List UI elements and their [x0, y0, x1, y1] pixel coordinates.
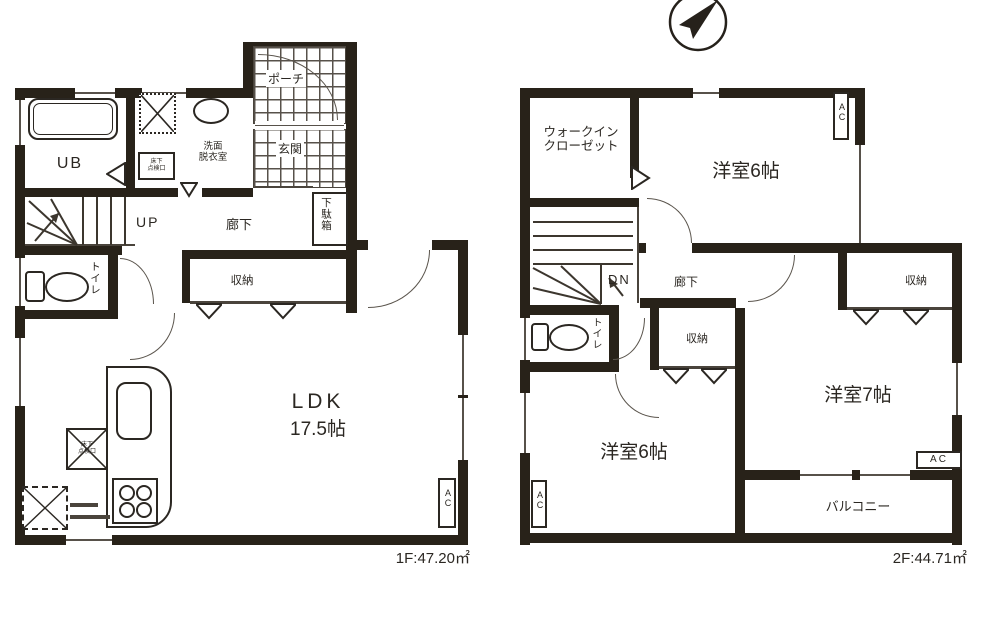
folding-door-mark: [701, 368, 727, 385]
folding-door-mark: [903, 309, 929, 326]
room-label-bedroom-sw: 洋室6帖: [586, 437, 682, 464]
wall: [650, 308, 659, 370]
ac-unit-bedroom-e: AC: [916, 451, 962, 469]
room-label-toilet: トイレ: [588, 317, 603, 350]
bedroom-ne-door-arc: [647, 198, 692, 243]
stairs-up: [25, 197, 135, 247]
ac-unit-ldk: AC: [438, 478, 456, 528]
floor2-area-label: 2F:44.71㎡: [845, 547, 967, 568]
window: [520, 393, 530, 453]
wall: [640, 298, 736, 308]
wall: [15, 188, 178, 197]
floor1-area-label: 1F:47.20㎡: [348, 547, 470, 568]
room-label-ub: UB: [40, 155, 100, 173]
bathtub-inner-line: [33, 103, 113, 135]
window: [15, 258, 25, 306]
window: [15, 338, 25, 406]
stove: [112, 478, 158, 524]
window: [15, 100, 25, 145]
toilet-door-arc: [613, 318, 645, 360]
room-label-shoe-cabinet: 下駄箱: [319, 197, 334, 232]
ac-label: AC: [837, 102, 847, 122]
window: [458, 335, 468, 395]
wall: [243, 46, 253, 98]
stairs-edge-line: [637, 207, 639, 303]
ac-label: AC: [918, 454, 960, 465]
north-arrow-icon: [666, 0, 730, 52]
toilet-bowl: [45, 272, 89, 302]
wall: [855, 243, 962, 253]
counter-line: [70, 515, 110, 519]
bedroom-e-door-arc: [748, 255, 795, 302]
window: [693, 88, 719, 98]
window: [75, 88, 115, 98]
washing-machine: [139, 93, 176, 134]
folding-door-mark: [663, 368, 689, 385]
refrigerator-space: [22, 486, 68, 530]
wall: [692, 243, 855, 253]
room-label-entrance: 玄関: [276, 140, 304, 157]
wall: [520, 198, 639, 207]
wall: [182, 259, 190, 303]
room-label-toilet: トイレ: [88, 261, 103, 296]
washroom-door-mark: [180, 182, 198, 198]
room-label-porch: ポーチ: [266, 70, 306, 87]
toilet-tank: [25, 271, 45, 302]
wall: [243, 42, 356, 46]
folding-door-mark: [853, 309, 879, 326]
bedroom-sw-door-arc: [615, 374, 659, 418]
room-label-storage-mid: 収納: [671, 330, 723, 346]
bathtub: [28, 98, 118, 140]
wall: [202, 188, 253, 197]
room-label-storage: 収納: [210, 272, 274, 288]
wall: [520, 362, 619, 372]
window: [458, 398, 468, 460]
stairs-down-label: DN: [608, 272, 631, 287]
hatch-label-line2: 点検口: [68, 449, 106, 456]
window: [520, 318, 530, 360]
underfloor-hatch: 床下 点検口: [138, 152, 175, 180]
room-label-wic: ウォークイン クローゼット: [528, 125, 634, 153]
window: [860, 470, 910, 480]
room-label-hallway: 廊下: [226, 214, 252, 233]
room-label-ldk: LDK 17.5帖: [248, 390, 388, 441]
room-label-bedroom-ne: 洋室6帖: [698, 156, 794, 183]
wall: [910, 470, 952, 480]
room-label-bedroom-e: 洋室7帖: [810, 380, 906, 407]
room-label-washroom: 洗面 脱衣室: [186, 142, 240, 163]
wall: [745, 470, 800, 480]
wall: [838, 253, 847, 310]
wall: [126, 88, 135, 193]
window: [855, 145, 865, 243]
ac-label: AC: [443, 488, 453, 508]
wall: [108, 255, 118, 313]
wall: [182, 250, 357, 259]
stairs-down: [531, 208, 635, 306]
folding-door-mark: [196, 303, 222, 320]
ldk-hall-door-arc: [130, 313, 175, 360]
toilet-tank: [531, 323, 549, 351]
entrance-step-line: [255, 186, 313, 188]
ac-label: AC: [535, 490, 545, 510]
wall: [638, 243, 646, 253]
entrance-door: [255, 121, 344, 130]
room-label-balcony: バルコニー: [812, 496, 904, 515]
ac-unit-bedroom-ne: AC: [833, 92, 849, 140]
room-label-hallway: 廊下: [674, 273, 698, 290]
wall: [15, 246, 122, 255]
stairs-up-label: UP: [136, 214, 159, 230]
wall: [346, 250, 357, 313]
kitchen-underfloor-hatch: 床下 点検口: [66, 428, 108, 470]
window: [800, 470, 852, 480]
wall: [735, 308, 745, 535]
wic-door-mark: [631, 166, 651, 190]
folding-door-mark: [270, 303, 296, 320]
wall: [520, 88, 530, 545]
hatch-label-line2: 点検口: [140, 166, 173, 173]
bath-door-mark: [106, 162, 126, 186]
floor-plan-canvas: 床下 点検口 床下: [0, 0, 1000, 622]
window: [952, 363, 962, 415]
wall: [520, 305, 619, 315]
window: [66, 535, 112, 545]
wall: [346, 240, 368, 250]
toilet-bowl: [549, 324, 589, 351]
entrance-area: [253, 129, 346, 188]
ldk-entry-door-arc: [368, 250, 430, 308]
ac-unit-bedroom-sw: AC: [531, 480, 547, 528]
room-label-storage-east: 収納: [888, 272, 944, 288]
toilet-door-arc: [120, 258, 154, 304]
wall: [15, 310, 118, 319]
counter-line: [70, 503, 98, 507]
washbasin: [193, 98, 229, 124]
wall: [852, 470, 860, 480]
kitchen-sink: [116, 382, 152, 440]
